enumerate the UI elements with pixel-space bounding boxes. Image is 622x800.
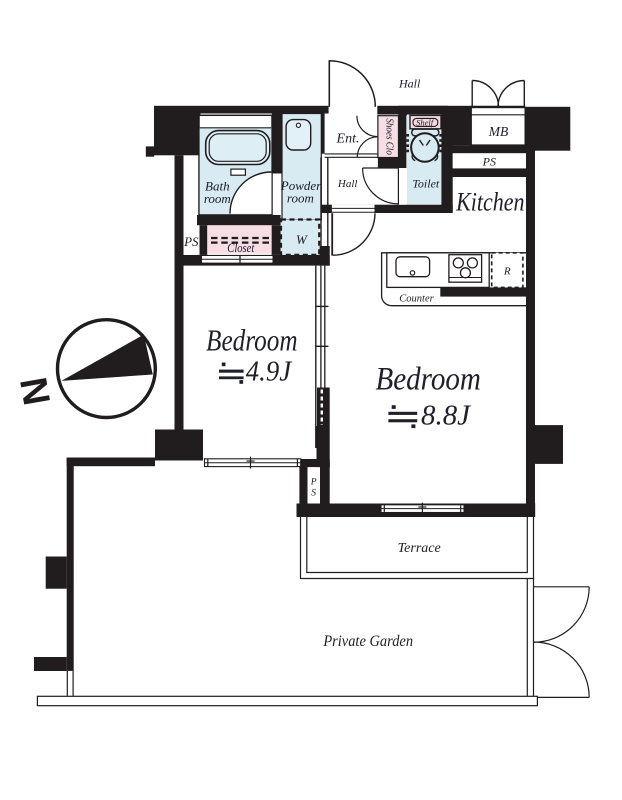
svg-text:room: room [287, 191, 314, 206]
svg-text:Bedroom: Bedroom [206, 324, 298, 358]
svg-text:room: room [204, 191, 231, 206]
svg-text:Closet: Closet [227, 241, 254, 255]
svg-text:Kitchen: Kitchen [455, 187, 524, 217]
svg-text:Shelf: Shelf [416, 117, 435, 127]
svg-text:W: W [296, 232, 308, 247]
svg-text:R: R [503, 266, 511, 278]
svg-text:PS: PS [482, 154, 496, 168]
svg-text:Shoes Clo: Shoes Clo [384, 118, 395, 155]
svg-text:Hall: Hall [398, 77, 421, 91]
svg-text:Terrace: Terrace [398, 541, 441, 556]
svg-text:Counter: Counter [399, 294, 434, 305]
svg-text:PS: PS [183, 234, 199, 249]
svg-text:P: P [310, 477, 317, 487]
svg-text:Hall: Hall [337, 178, 358, 190]
svg-text:MB: MB [488, 124, 509, 139]
svg-text:Toilet: Toilet [412, 177, 440, 191]
svg-text:8.8J: 8.8J [421, 401, 472, 432]
svg-text:Ent.: Ent. [336, 132, 360, 147]
svg-text:S: S [311, 488, 316, 498]
svg-text:Bedroom: Bedroom [375, 362, 481, 398]
svg-text:Private Garden: Private Garden [322, 633, 413, 650]
svg-text:4.9J: 4.9J [246, 357, 293, 388]
